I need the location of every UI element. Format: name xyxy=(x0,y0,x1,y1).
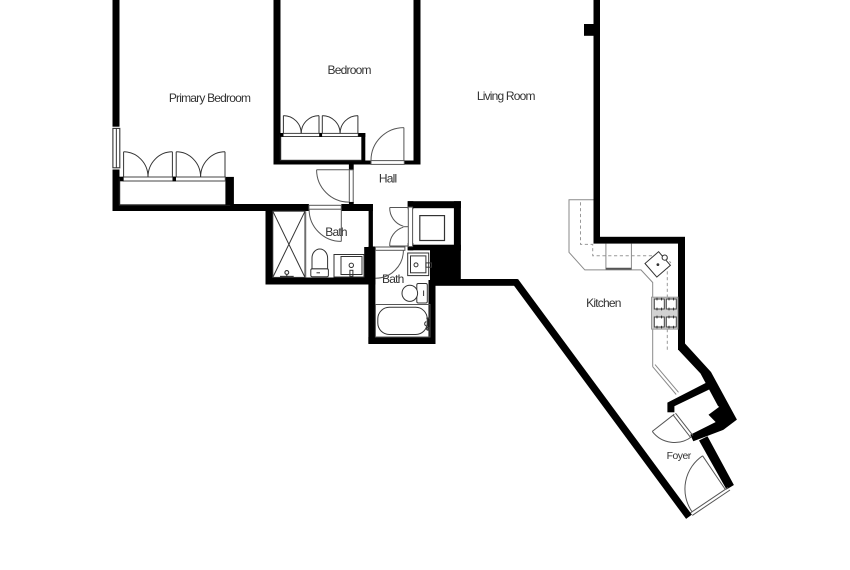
svg-text:Foyer: Foyer xyxy=(667,451,692,462)
svg-text:Kitchen: Kitchen xyxy=(586,296,621,310)
svg-text:Bath: Bath xyxy=(382,272,404,286)
svg-text:Bath: Bath xyxy=(325,225,347,239)
svg-text:Hall: Hall xyxy=(379,172,397,186)
svg-text:Living Room: Living Room xyxy=(477,89,536,103)
svg-text:Primary Bedroom: Primary Bedroom xyxy=(169,91,251,105)
svg-text:Bedroom: Bedroom xyxy=(328,63,372,77)
